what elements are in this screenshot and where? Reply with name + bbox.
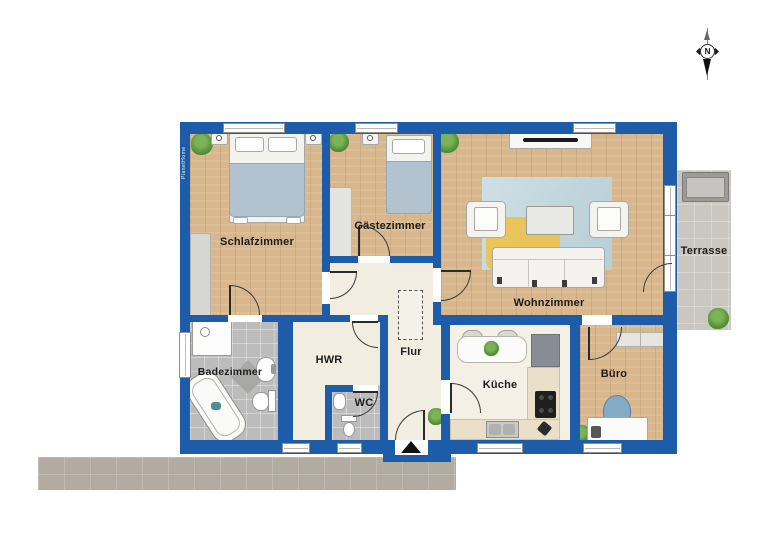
- stove-burner-2: [548, 395, 553, 400]
- wall-wohnzimmer-bottom: [441, 315, 663, 325]
- doorway-gaestezimmer: [358, 256, 390, 263]
- room-label-wohnzimmer: Wohnzimmer: [494, 297, 604, 309]
- door-leaf-wc: [353, 391, 378, 393]
- doorway-kueche: [441, 380, 450, 414]
- sofa-foot-1: [497, 277, 502, 284]
- room-label-hwr: HWR: [299, 354, 359, 366]
- room-label-terrasse: Terrasse: [675, 245, 733, 257]
- kitchen-sink-bowl-left: [489, 424, 501, 435]
- doorway-wohnzimmer: [433, 268, 441, 302]
- floor-plan: Schlafzimmer Gästezimmer Wohnzimmer Bade…: [0, 0, 768, 560]
- compass-north-label: N: [700, 44, 715, 59]
- sofa-divider-1: [528, 260, 529, 286]
- bathtub-pillow: [211, 402, 221, 410]
- room-label-buero: Büro: [585, 368, 643, 380]
- desk-laptop: [591, 426, 601, 438]
- room-label-badezimmer: Badezimmer: [188, 366, 272, 378]
- window-schlafzimmer: [223, 123, 285, 133]
- toilet-tank: [268, 390, 276, 412]
- wc-toilet-bowl: [343, 422, 355, 437]
- room-label-schlafzimmer: Schlafzimmer: [198, 236, 316, 248]
- window-gaestezimmer: [355, 123, 398, 133]
- wall-entrance-porch: [383, 454, 451, 462]
- window-hwr: [282, 443, 310, 453]
- shower: [192, 321, 232, 356]
- stove-burner-3: [539, 408, 544, 413]
- shower-head: [200, 327, 210, 337]
- stove-burner-4: [548, 408, 553, 413]
- coffee-table: [526, 206, 574, 235]
- doorway-buero: [582, 315, 612, 325]
- door-leaf-hwr: [352, 321, 378, 323]
- wall-bad-hwr: [278, 322, 293, 440]
- stove: [535, 391, 556, 418]
- kitchen-sink-bowl-right: [503, 424, 515, 435]
- office-shelf-divider: [640, 333, 641, 346]
- bed-foot-pad-left: [233, 217, 248, 224]
- room-label-kueche: Küche: [456, 379, 544, 391]
- wall-wc-left: [325, 385, 332, 440]
- wall-kueche-buero: [570, 325, 580, 440]
- room-label-flur: Flur: [388, 346, 434, 358]
- door-leaf-buero: [588, 327, 590, 360]
- room-label-wc: WC: [347, 397, 381, 409]
- window-buero: [583, 443, 622, 453]
- door-leaf-schlafzimmer: [330, 271, 357, 273]
- doorway-badezimmer: [228, 315, 262, 322]
- schlafzimmer-plant: [191, 133, 213, 155]
- lamp-left: [216, 135, 222, 141]
- terrace-door-mullion-1: [665, 215, 675, 216]
- single-bed-pillow: [392, 139, 425, 154]
- bed-blanket: [229, 163, 305, 217]
- door-leaf-badezimmer: [229, 285, 231, 315]
- gaeste-lamp: [367, 135, 373, 141]
- bed-foot-pad-right: [286, 217, 301, 224]
- window-kueche: [477, 443, 523, 453]
- sofa-backrest-line: [494, 259, 603, 260]
- lamp-right: [310, 135, 316, 141]
- bed-pillow-left: [235, 137, 264, 152]
- door-leaf-wohnzimmer: [441, 270, 471, 272]
- kitchen-tall-unit: [531, 334, 560, 367]
- terrace-door-mullion-2: [665, 255, 675, 256]
- single-bed-blanket: [386, 161, 432, 214]
- door-leaf-kueche: [450, 383, 452, 413]
- bed-pillow-right: [268, 137, 297, 152]
- stove-burner-1: [539, 395, 544, 400]
- wc-sink: [333, 393, 346, 410]
- compass-north-tip-icon: [704, 30, 710, 40]
- armchair-left-seat: [474, 207, 498, 231]
- wall-hwr-flur: [380, 322, 388, 440]
- watermark-text: PlanetHome: [181, 131, 189, 179]
- sofa-foot-4: [592, 277, 597, 284]
- armchair-right-seat: [597, 207, 621, 231]
- sofa-foot-2: [532, 280, 537, 287]
- terrace-lounger-cushion: [686, 177, 725, 198]
- toilet-bowl: [252, 392, 269, 411]
- entrance-arrow-icon: [401, 441, 421, 453]
- flur-dashed-hatch: [398, 290, 423, 340]
- window-wohnzimmer: [573, 123, 616, 133]
- window-wc: [337, 443, 362, 453]
- room-label-gaestezimmer: Gästezimmer: [339, 220, 441, 232]
- doorway-schlafzimmer: [322, 272, 330, 304]
- door-leaf-front-door: [423, 410, 425, 440]
- sofa: [492, 247, 605, 288]
- sofa-foot-3: [562, 280, 567, 287]
- tv: [523, 138, 578, 142]
- compass-south-needle-icon: [703, 59, 711, 76]
